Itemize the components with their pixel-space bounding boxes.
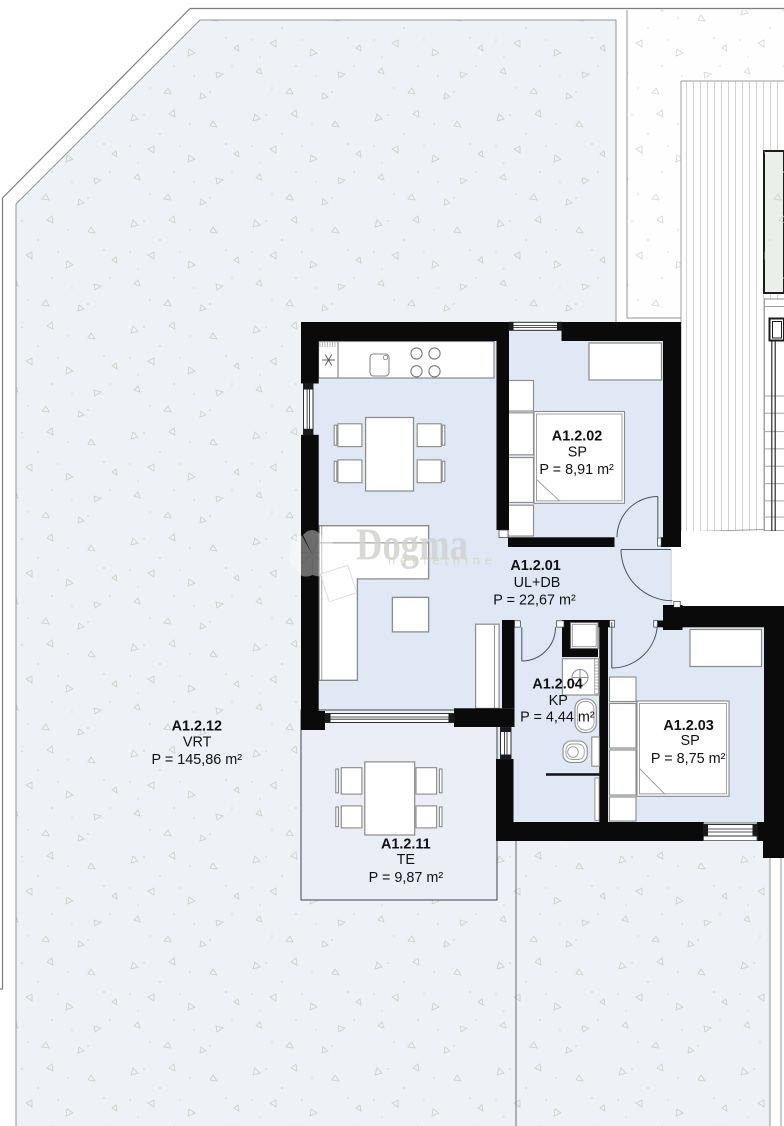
svg-text:A1.2.01: A1.2.01 [510,558,560,574]
svg-text:P = 9,87 m²: P = 9,87 m² [369,870,444,886]
svg-text:P = 4,44 m²: P = 4,44 m² [520,709,595,725]
svg-text:TE: TE [397,852,415,868]
svg-text:A1.2.11: A1.2.11 [381,836,431,852]
svg-text:SP: SP [680,733,699,749]
svg-text:P = 22,67 m²: P = 22,67 m² [493,592,576,608]
svg-text:A1.2.02: A1.2.02 [552,429,602,445]
svg-text:nekretnine: nekretnine [388,553,497,568]
svg-text:P = 145,86 m²: P = 145,86 m² [152,752,243,768]
svg-text:P = 8,91 m²: P = 8,91 m² [539,462,614,478]
svg-text:A1.2.04: A1.2.04 [532,677,582,693]
svg-text:A1.2.12: A1.2.12 [172,719,222,735]
svg-text:A1.2.03: A1.2.03 [663,718,713,734]
svg-text:P = 8,75 m²: P = 8,75 m² [651,751,726,767]
svg-text:UL+DB: UL+DB [514,575,561,591]
svg-text:VRT: VRT [183,735,212,751]
svg-text:SP: SP [568,445,587,461]
svg-text:KP: KP [549,693,568,709]
